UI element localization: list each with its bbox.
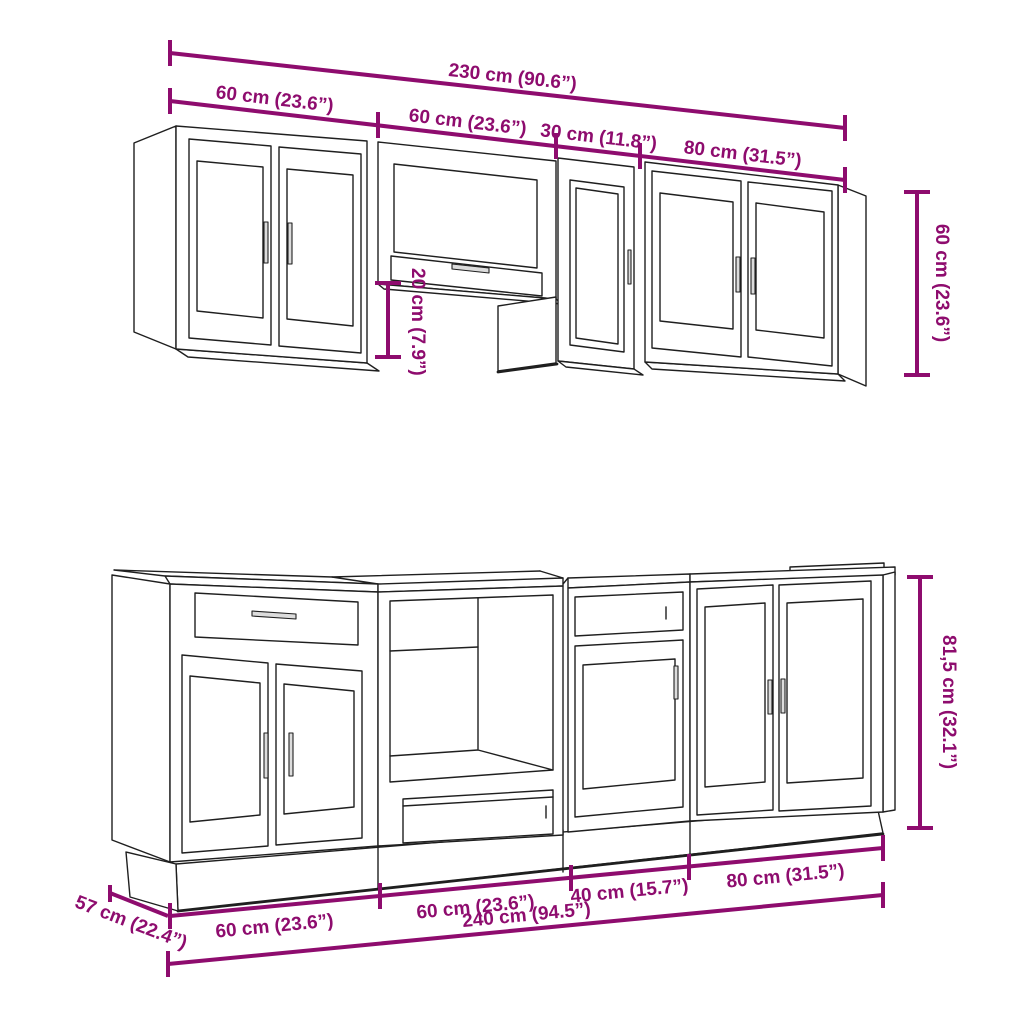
wall-cabinet-60-double-door — [134, 126, 379, 371]
base-cabinet-40-drawer-door — [563, 574, 690, 832]
base-height-label: 81,5 cm (32.1”) — [938, 635, 959, 769]
door-handle — [751, 258, 755, 294]
door-handle — [736, 257, 740, 292]
base-unit-width-label-4: 80 cm (31.5”) — [726, 860, 846, 892]
door-handle — [288, 223, 292, 264]
door-handle — [781, 679, 785, 713]
door-handle — [674, 666, 678, 699]
hood-clearance-label: 20 cm (7.9”) — [407, 268, 428, 376]
wall-height-label: 60 cm (23.6”) — [931, 224, 952, 342]
door-handle — [628, 250, 631, 284]
door-handle — [264, 222, 268, 263]
wall-cabinet-80-double-door — [645, 162, 866, 386]
door-handle — [289, 733, 293, 776]
cabinet-line-art — [112, 126, 895, 911]
base-unit-width-label-1: 60 cm (23.6”) — [215, 910, 335, 942]
base-cabinet-60-drawer-doors — [112, 570, 378, 862]
base-cabinet-80-double-door — [690, 563, 895, 821]
diagram-canvas: 230 cm (90.6”) 60 cm (23.6”) 60 cm (23.6… — [0, 0, 1024, 1024]
dim-base-height: 81,5 cm (32.1”) — [907, 577, 959, 828]
door-handle — [768, 680, 772, 714]
dim-wall-height: 60 cm (23.6”) — [904, 192, 952, 375]
kitchen-cabinet-dimension-diagram: 230 cm (90.6”) 60 cm (23.6”) 60 cm (23.6… — [0, 0, 1024, 1024]
wall-hood-cabinet-60 — [378, 142, 562, 304]
door-handle — [264, 733, 268, 778]
